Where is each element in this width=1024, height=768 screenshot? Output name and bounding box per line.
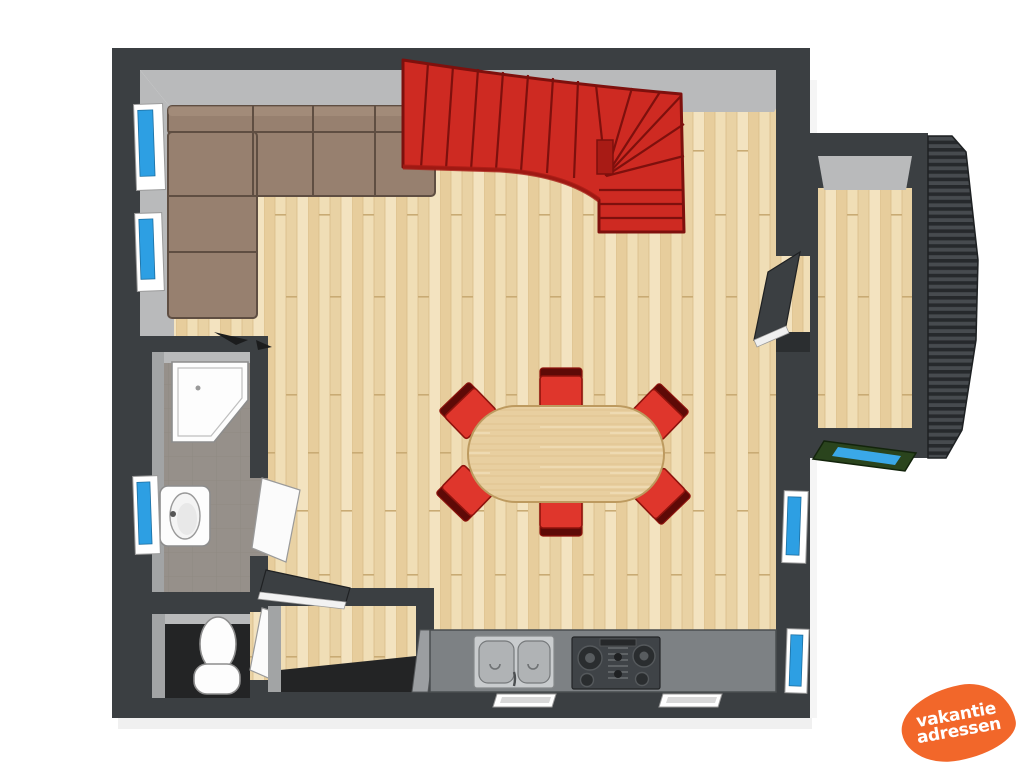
window-east-2 [785, 629, 809, 694]
window-south-2-pane [666, 697, 717, 703]
house-shadow-bottom [118, 718, 812, 729]
hall-wall-face-left [268, 606, 281, 692]
shower-drain [196, 386, 201, 391]
wall-north [112, 48, 810, 70]
dining-table [468, 406, 664, 502]
stair-newel-post [597, 140, 613, 174]
window-east-1 [782, 491, 808, 564]
floorplan-svg [0, 0, 1024, 768]
window-pane [138, 110, 155, 176]
window-west-1 [134, 104, 166, 191]
burner-small-left [581, 674, 594, 687]
burner-core [640, 652, 649, 661]
sink-basin-right [518, 641, 550, 683]
burner-small-right [636, 673, 649, 686]
chair-seat [540, 376, 582, 408]
brand-logo-text: vakantie adressen [913, 700, 1002, 747]
sink-bowl-shade [177, 503, 197, 535]
window-pane [786, 497, 801, 555]
annex-floor [818, 188, 912, 428]
annex-wall-face-top [818, 156, 912, 190]
wc-wall-face-top [152, 614, 250, 624]
bathroom-wall-face-left [152, 352, 164, 592]
wall-east [776, 48, 810, 718]
hob-knob [614, 653, 622, 661]
louvered-roof [928, 136, 978, 458]
sofa-backrest-top [168, 106, 435, 116]
entrance-hall [258, 570, 434, 718]
wc-wall-face-left [152, 614, 165, 698]
dining-set [436, 368, 692, 536]
hob-label [600, 639, 636, 646]
window-pane [137, 482, 152, 544]
window-pane [139, 219, 155, 279]
annex [810, 133, 978, 471]
dining-chair-top [540, 368, 582, 408]
toilet-bowl [200, 617, 236, 671]
toilet-seat [194, 664, 240, 694]
window-bathroom [133, 476, 161, 555]
sofa-seats-left-column [168, 132, 257, 318]
hob-knob [614, 670, 622, 678]
window-pane [789, 635, 803, 686]
floorplan-canvas: vakantie adressen [0, 0, 1024, 768]
burner-core [585, 653, 595, 663]
gas-hob [572, 637, 660, 689]
sink-basin-left [479, 641, 514, 683]
window-west-2 [135, 213, 165, 292]
kitchen-sink [474, 636, 554, 688]
sink-faucet [514, 672, 515, 686]
sink-faucet [170, 511, 176, 517]
window-south-1-pane [500, 697, 551, 703]
